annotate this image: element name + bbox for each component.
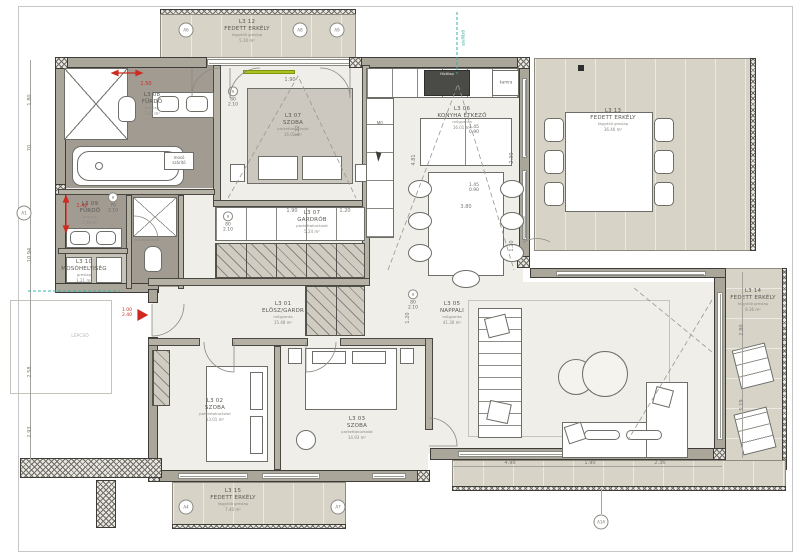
cabinet-label: mosószárító [172,156,185,166]
dim-chain-west [30,60,31,470]
wall-north-2 [351,57,529,68]
dim-kitchen-depth: 4.81 [411,154,417,165]
window-tag-2: 1.450.90 [469,183,479,193]
dining-chair-3 [408,244,432,262]
sofa-l-cushion-1 [584,430,620,440]
green-marker-bar [243,70,295,74]
room-label-laundry: L3 10MOSÓHELYISÉG greslap1.21 m² [61,259,106,283]
dim-gardrob-depth: 1.20 [339,208,350,214]
partition-wc-west [126,195,132,289]
dining-chair-4 [500,180,524,198]
sofa-v-pillow-2 [486,400,512,424]
room-label-bathroom1: L3 08FÜRDŐ greslap7.19 m² [142,92,163,116]
balcony13-marker-square [578,65,584,71]
wall-hatch-se [713,448,726,460]
door-tag-bedroom7: a 802.10 [228,86,238,107]
toilet-1 [118,96,136,122]
room-label-balcony15: L3 15FEDETT ERKÉLY fagyálló greslap7.40 … [210,488,255,512]
grid-marker-a6: A6 [179,23,194,38]
grid-marker-a1: A1 [17,206,32,221]
window-bedroom3b [372,473,406,479]
kitchen-window-east-1 [522,78,527,158]
dim-gardrob-width: 1.90 [286,208,297,214]
door-tag-entry: 1.002.40 [122,308,132,318]
dim-left1: 1.80 [27,94,33,105]
dim-dining-width: 3.80 [460,204,471,210]
balcony13-chair-5 [654,150,674,174]
balcony-l3-15 [172,482,346,526]
wardrobe-band-gardrob [215,243,365,278]
cooktop: főzőlap [424,70,470,96]
grid-marker-a14-tick [601,488,602,514]
balcony13-chair-1 [544,118,564,142]
grid-marker-a7: A7 [331,500,346,515]
partition-bedrooms-23 [274,346,281,470]
door-tag-gardrob: a 802.10 [223,211,233,232]
grid-marker-a4: A4 [179,500,194,515]
room-label-balcony14: L3 14FEDETT ERKÉLY fagyálló greslap8.36 … [730,288,775,312]
door-tag-wc: a 702.10 [108,192,118,213]
dim-chain-south [452,466,722,467]
balcony13-chair-2 [544,150,564,174]
partition-wc-east [178,195,184,289]
shower-2 [133,197,177,237]
living-glazing-east [717,292,723,440]
dim-kitchen-east2: 1.20 [509,240,515,251]
bed-2-pillow-1 [250,372,263,410]
stairwell-label: LÉPCSŐ [71,334,89,340]
grid-marker-a9: A9 [330,23,345,38]
partition-hall-south-2 [232,338,308,346]
dim-living-south3: 2.36 [654,460,665,466]
washbasin-1b [186,96,208,112]
dim-kitchen-east1: 2.30 [509,152,515,163]
sofa-l-cushion-2 [626,430,662,440]
kitchen-tall-units [366,98,394,238]
dim-bath1-width: 1.50 [140,81,151,87]
nightstand-1 [230,164,245,182]
wardrobe-bedroom2 [152,350,170,406]
dim-living-east2: 5.19 [739,399,745,410]
room-label-bedroom2: L3 02SZOBA parkettaburkolat13.01 m² [199,398,231,422]
bed-master-pillow-2 [302,156,342,180]
dim-left5: 2.93 [27,426,33,437]
coffee-table-large [582,351,628,397]
partition-bath2-laundry [58,248,128,254]
room-label-bedroom3: L3 03SZOBA parkettaburkolat14.93 m² [341,416,373,440]
dining-table [428,172,504,276]
room-label-kitchen: L3 06KONYHA ÉTKEZŐ műgyanta16.01 m² [437,106,486,130]
window-tag-1: 1.450.90 [469,125,479,135]
dining-chair-7 [452,270,480,288]
dining-chair-1 [408,180,432,198]
dim-left4: 2.58 [27,366,33,377]
bed-master-pillow-1 [258,156,298,180]
room-label-hall: L3 01ELŐSZ/GARDR műgyanta15.48 m² [262,301,304,325]
room-label-gardrob: L3 07GARDRÓB parkettaburkolat5.24 m² [296,210,328,234]
wardrobe-hall [305,286,365,336]
partition-bath1-south [58,189,215,195]
door-tag-living: a 802.10 [408,289,418,310]
wall-laundry-south [55,283,159,293]
grid-marker-a8: A8 [293,23,308,38]
dining-chair-2 [408,212,432,230]
dim-living-south1: 4.98 [504,460,515,466]
partition-bedroom7-gardrob [213,200,369,207]
dishwasher-label: MG [377,122,384,127]
partition-hall-north [148,278,370,286]
toilet-2 [144,246,162,272]
bed-2-pillow-2 [250,416,263,454]
dim-chain-east [742,272,743,458]
dining-chair-5 [500,212,524,230]
balcony13-chair-6 [654,182,674,206]
balcony-strip-parapet [452,486,786,491]
dim-living-east1: 2.80 [739,324,745,335]
balcony14-parapet [782,268,787,470]
partition-hall-south-3 [340,338,432,346]
dim-bedroom7-width: 1.90 [284,77,295,83]
vent-label: szellőző [462,30,467,46]
partition-bedroom3-living [425,338,433,430]
balcony12-sliding-door [207,59,353,66]
wall-hatch-n [349,57,362,68]
courtyard-hatch-pier [96,480,116,528]
washbasin-2a [70,231,90,245]
wall-west-lower-1 [148,289,158,303]
dim-living-south2: 1.90 [584,460,595,466]
balcony15-parapet [172,524,346,529]
living-glazing-north [556,271,706,276]
room-label-living: L3 05NAPPALI műgyanta41.30 m² [440,301,464,325]
stairwell-outline-1 [10,300,112,394]
courtyard-hatch-band [20,458,162,478]
dim-bedroom7-depth: 3.22 [295,125,301,136]
window-bedroom2 [178,473,248,479]
pouf [296,430,316,450]
partition-bath1-bedroom [213,65,221,207]
room-label-bedroom7: L3 07SZOBA parkettaburkolat16.02 m² [277,113,309,137]
dim-left3: 10.94 [27,248,33,262]
balcony13-chair-4 [654,118,674,142]
room-label-balcony13: L3 13FEDETT ERKÉLY fagyálló greslap36.46… [590,108,635,132]
balcony13-parapet [750,58,756,251]
pantry-label: kamra [500,81,513,86]
washbasin-2b [96,231,116,245]
bathtub-drain [95,162,103,170]
kitchen-window-east-2 [522,170,527,240]
floor-plan-canvas: mosószárító főzőlap kamra MG [0,0,800,557]
dim-left2: 70 [27,145,33,151]
bed-3-pillow-1 [312,351,346,364]
partition-hall-south-1 [148,338,200,346]
dim-hall-depth: 1.20 [405,312,411,323]
grid-marker-a14: A14 [594,515,609,530]
bed-3-pillow-2 [352,351,386,364]
floor-bedrooms-south [152,440,428,472]
dim-bath2-width: 1.40 [76,203,87,209]
balcony13-chair-3 [544,182,564,206]
wall-north-1 [55,57,207,68]
window-bedroom3 [262,473,320,479]
nightstand-3 [288,348,302,364]
nightstand-4 [400,348,414,364]
room-label-balcony12: L3 12FEDETT ERKÉLY fagyálló greslap5.10 … [224,19,269,43]
wall-hatch-s [417,470,430,482]
balcony-strip-southeast [452,460,786,488]
